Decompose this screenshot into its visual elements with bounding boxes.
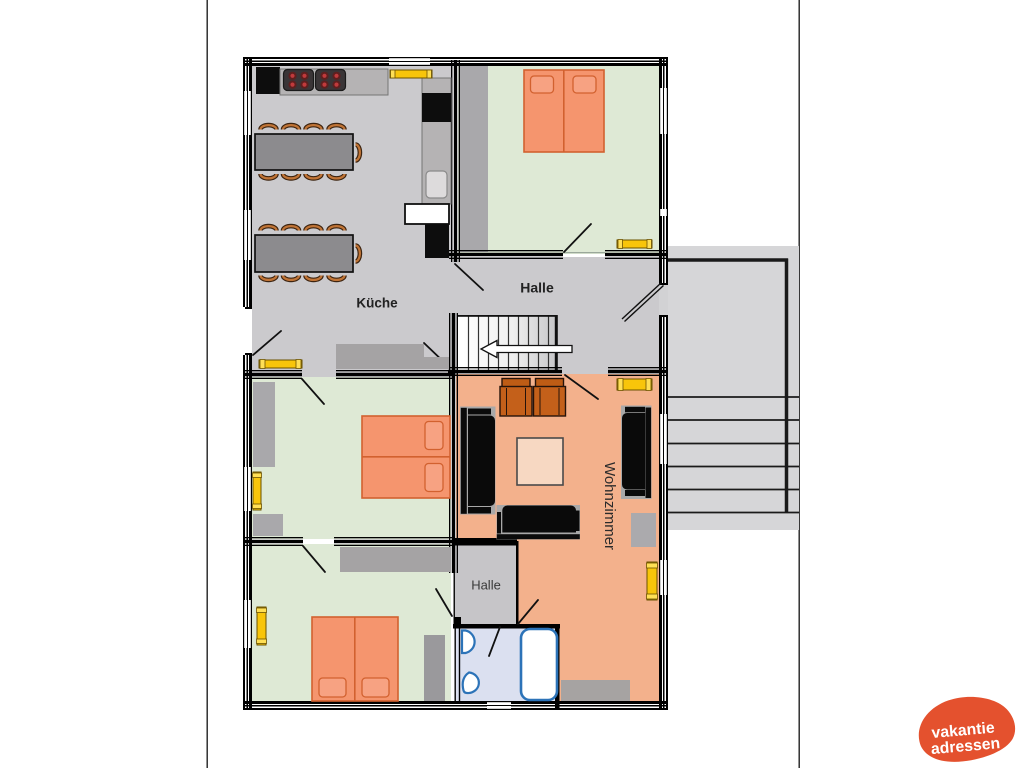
- svg-text:Wohnzimmer: Wohnzimmer: [601, 462, 618, 550]
- svg-text:Halle: Halle: [471, 578, 501, 593]
- svg-text:Halle: Halle: [520, 280, 554, 296]
- svg-text:Küche: Küche: [356, 296, 398, 311]
